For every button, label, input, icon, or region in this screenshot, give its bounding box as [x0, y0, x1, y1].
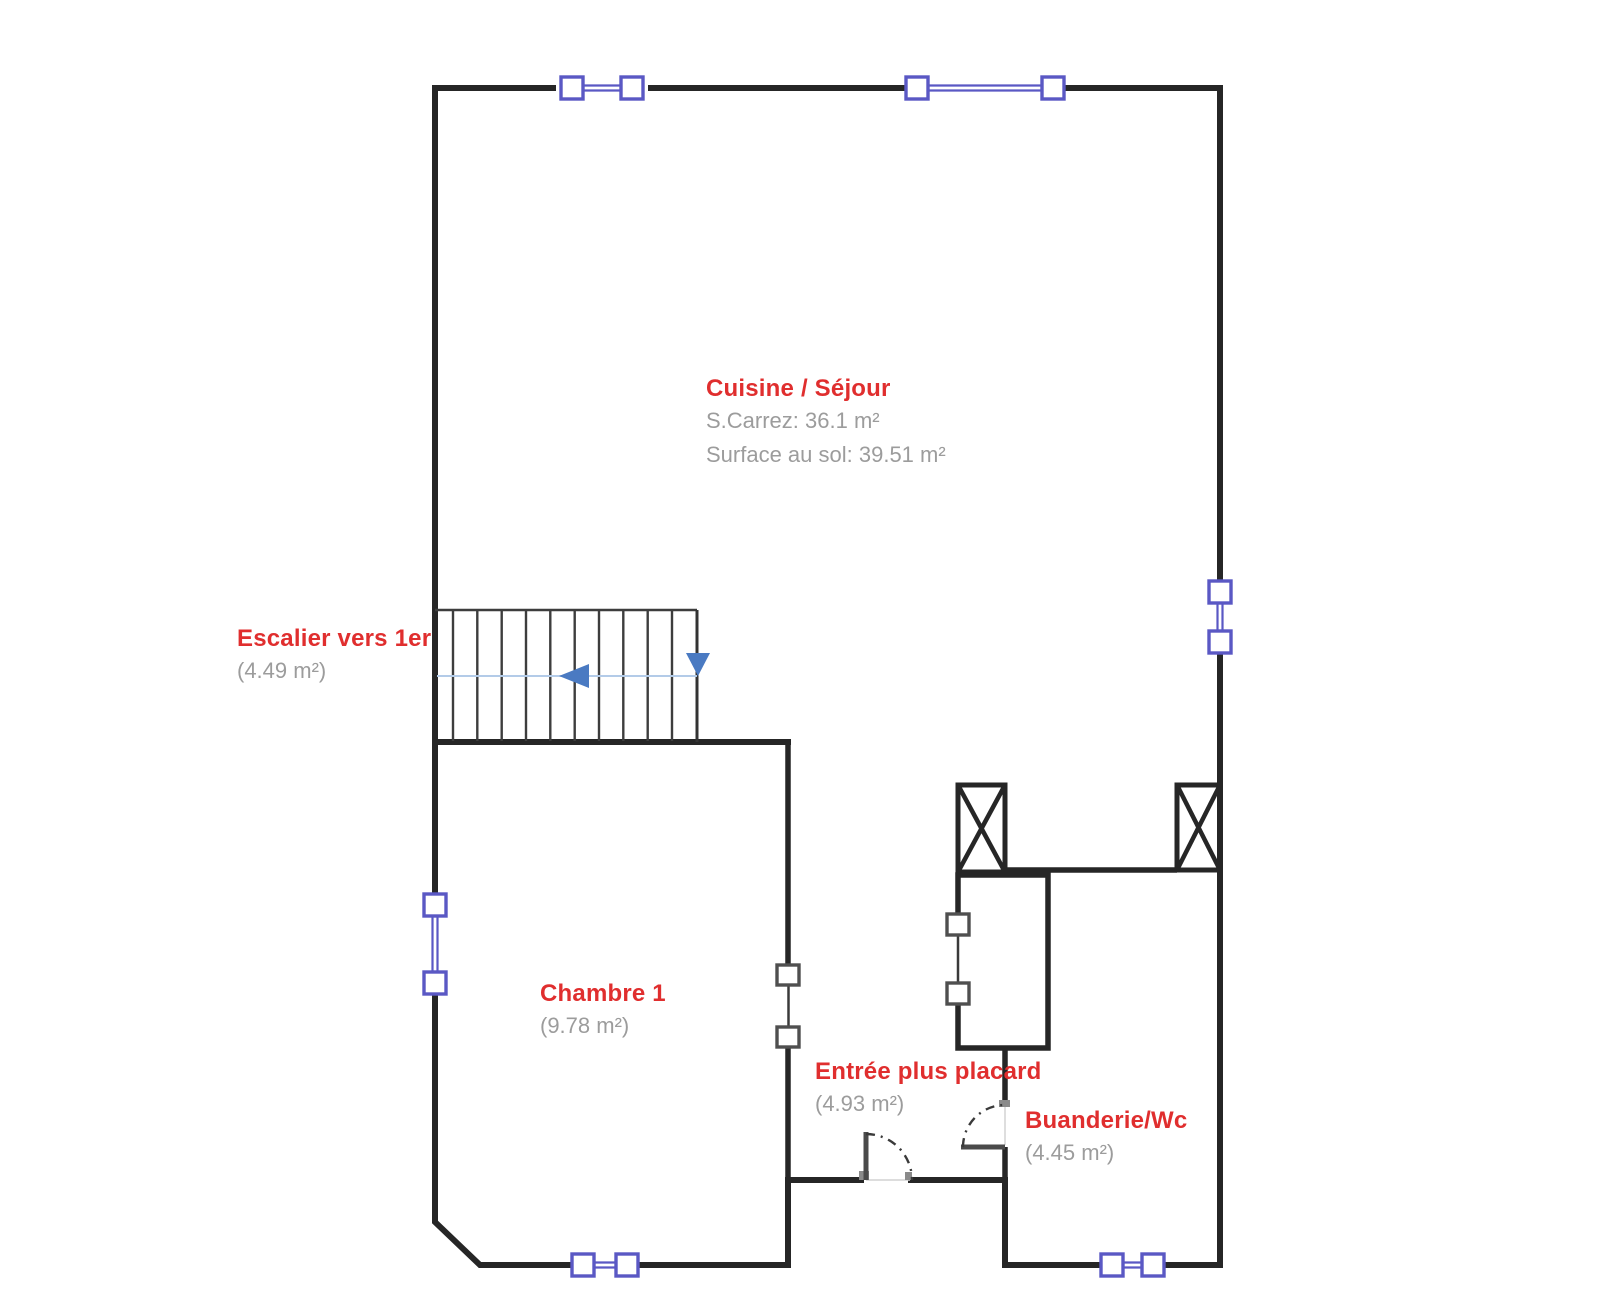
room-carrez-area: S.Carrez: 36.1 m² — [706, 404, 946, 438]
stairs — [435, 610, 710, 742]
room-name: Entrée plus placard — [815, 1057, 1042, 1087]
room-label-escalier: Escalier vers 1er (4.49 m²) — [237, 624, 431, 688]
room-floor-area: Surface au sol: 39.51 m² — [706, 438, 946, 472]
room-label-chambre: Chambre 1 (9.78 m²) — [540, 979, 666, 1043]
shaft-symbol-left — [958, 785, 1005, 872]
room-name: Escalier vers 1er — [237, 624, 431, 654]
room-area: (4.93 m²) — [815, 1087, 1042, 1121]
entry-door — [859, 1132, 912, 1187]
window-bottom-right — [1100, 1254, 1165, 1276]
shaft-symbol-right — [1177, 785, 1220, 870]
room-label-entree: Entrée plus placard (4.93 m²) — [815, 1057, 1042, 1121]
window-bottom-left — [571, 1254, 639, 1276]
room-label-cuisine: Cuisine / Séjour S.Carrez: 36.1 m² Surfa… — [706, 374, 946, 472]
room-name: Buanderie/Wc — [1025, 1106, 1187, 1136]
window-left-wall — [424, 893, 446, 995]
window-right-wall — [1209, 581, 1231, 653]
stair-arrow-down-icon — [686, 653, 710, 676]
floor-plan: Cuisine / Séjour S.Carrez: 36.1 m² Surfa… — [0, 0, 1600, 1304]
window-top-left — [556, 77, 648, 99]
room-label-buanderie: Buanderie/Wc (4.45 m²) — [1025, 1106, 1187, 1170]
interior-window-chambre — [777, 965, 799, 1047]
room-area: (4.45 m²) — [1025, 1136, 1187, 1170]
room-area: (4.49 m²) — [237, 654, 431, 688]
window-top-right — [905, 77, 1065, 99]
closet-walls — [958, 875, 1048, 1048]
room-name: Chambre 1 — [540, 979, 666, 1009]
room-area: (9.78 m²) — [540, 1009, 666, 1043]
interior-window-placard — [947, 914, 969, 1004]
room-name: Cuisine / Séjour — [706, 374, 946, 404]
